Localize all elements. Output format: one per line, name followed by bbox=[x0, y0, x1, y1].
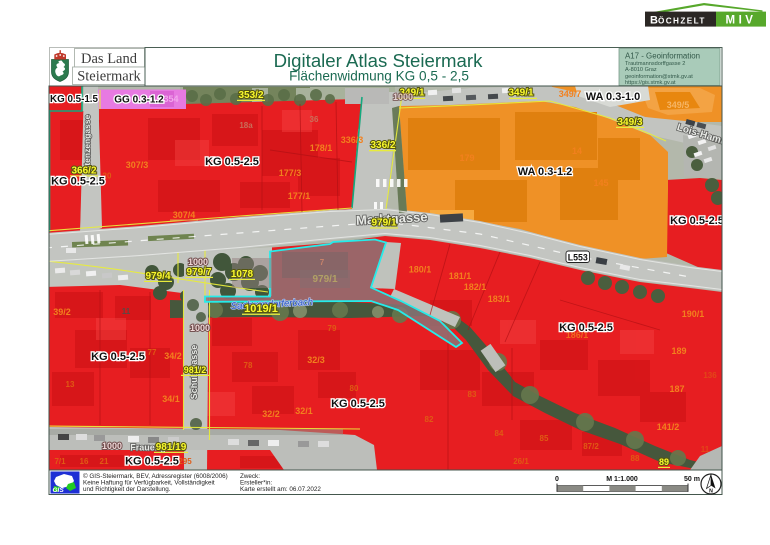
svg-text:34/2: 34/2 bbox=[164, 351, 182, 361]
svg-text:353/2: 353/2 bbox=[238, 90, 263, 101]
svg-text:7/1: 7/1 bbox=[54, 457, 66, 466]
svg-text:145: 145 bbox=[593, 178, 608, 188]
svg-text:136: 136 bbox=[703, 371, 717, 380]
svg-text:80: 80 bbox=[350, 384, 359, 393]
svg-text:16: 16 bbox=[80, 457, 89, 466]
svg-text:181/1: 181/1 bbox=[449, 271, 472, 281]
svg-text:88: 88 bbox=[631, 454, 640, 463]
svg-text:1019/1: 1019/1 bbox=[244, 303, 278, 315]
svg-text:0: 0 bbox=[555, 476, 559, 483]
svg-text:und Richtigkeit der Darstellun: und Richtigkeit der Darstellung. bbox=[83, 486, 171, 493]
svg-text:KG 0.5-2.5: KG 0.5-2.5 bbox=[51, 176, 105, 188]
svg-text:82: 82 bbox=[425, 415, 434, 424]
svg-text:14: 14 bbox=[572, 146, 582, 156]
svg-text:M 1:1.000: M 1:1.000 bbox=[606, 476, 638, 483]
svg-text:1000: 1000 bbox=[190, 323, 210, 333]
svg-text:MIV: MIV bbox=[726, 14, 757, 26]
svg-text:A-8010 Graz: A-8010 Graz bbox=[625, 67, 657, 73]
svg-text:KG 0.5-1.5: KG 0.5-1.5 bbox=[50, 94, 98, 105]
svg-text:WA 0.3-1.2: WA 0.3-1.2 bbox=[518, 166, 573, 178]
svg-text:34/1: 34/1 bbox=[162, 394, 180, 404]
svg-text:Das Land: Das Land bbox=[81, 51, 138, 67]
svg-text:7: 7 bbox=[320, 258, 325, 267]
svg-text:307/4: 307/4 bbox=[173, 210, 196, 220]
svg-text:Stenzengasse: Stenzengasse bbox=[82, 114, 92, 171]
svg-text:21: 21 bbox=[100, 457, 109, 466]
svg-text:13: 13 bbox=[66, 380, 75, 389]
svg-text:979/7: 979/7 bbox=[186, 267, 211, 278]
svg-text:349/1: 349/1 bbox=[508, 88, 533, 99]
svg-text:83: 83 bbox=[468, 390, 477, 399]
svg-text:KG 0.5-2.5: KG 0.5-2.5 bbox=[205, 156, 259, 168]
svg-text:336/3: 336/3 bbox=[341, 135, 364, 145]
svg-text:KG 0.5-2.5: KG 0.5-2.5 bbox=[125, 456, 179, 468]
svg-text:N: N bbox=[709, 489, 713, 495]
svg-text:32/1: 32/1 bbox=[295, 406, 313, 416]
svg-text:https://gis.stmk.gv.at: https://gis.stmk.gv.at bbox=[625, 80, 676, 86]
svg-text:349/7: 349/7 bbox=[559, 89, 582, 99]
svg-text:GG 0.3-1.2: GG 0.3-1.2 bbox=[114, 95, 164, 106]
svg-text:26/1: 26/1 bbox=[513, 457, 529, 466]
svg-text:L553: L553 bbox=[568, 252, 588, 262]
svg-text:39/2: 39/2 bbox=[53, 307, 71, 317]
svg-text:177/1: 177/1 bbox=[288, 191, 311, 201]
svg-text:295: 295 bbox=[178, 457, 192, 466]
svg-text:78: 78 bbox=[244, 361, 253, 370]
svg-text:190/1: 190/1 bbox=[682, 309, 705, 319]
svg-text:349/3: 349/3 bbox=[617, 117, 642, 128]
svg-text:182/1: 182/1 bbox=[464, 282, 487, 292]
svg-text:KG 0.5-2.5: KG 0.5-2.5 bbox=[559, 322, 613, 334]
svg-text:180/1: 180/1 bbox=[409, 265, 432, 275]
svg-text:Flächenwidmung KG 0,5 - 2,5: Flächenwidmung KG 0,5 - 2,5 bbox=[289, 69, 469, 84]
svg-text:WA 0.3-1.0: WA 0.3-1.0 bbox=[586, 91, 641, 103]
svg-text:979/1: 979/1 bbox=[371, 218, 396, 229]
svg-text:979/4: 979/4 bbox=[145, 271, 170, 282]
svg-text:981/2: 981/2 bbox=[184, 365, 207, 375]
svg-text:Steiermark: Steiermark bbox=[77, 69, 141, 85]
svg-text:1000: 1000 bbox=[188, 257, 208, 267]
svg-text:KG 0.5-2.5: KG 0.5-2.5 bbox=[670, 215, 724, 227]
svg-text:981/19: 981/19 bbox=[156, 442, 187, 453]
svg-text:GIS: GIS bbox=[53, 487, 65, 494]
svg-text:18a: 18a bbox=[239, 121, 253, 130]
svg-text:11: 11 bbox=[122, 307, 131, 316]
svg-text:354: 354 bbox=[163, 94, 178, 104]
svg-text:77: 77 bbox=[148, 348, 157, 357]
svg-text:177/3: 177/3 bbox=[279, 168, 302, 178]
svg-text:32/3: 32/3 bbox=[307, 355, 325, 365]
svg-text:1078: 1078 bbox=[231, 269, 254, 280]
svg-text:11: 11 bbox=[701, 445, 710, 454]
svg-text:KG 0.5-2.5: KG 0.5-2.5 bbox=[331, 398, 385, 410]
svg-text:85: 85 bbox=[540, 434, 549, 443]
svg-text:1000: 1000 bbox=[102, 441, 122, 451]
svg-text:349/5: 349/5 bbox=[667, 100, 690, 110]
svg-text:50 m: 50 m bbox=[684, 476, 700, 483]
svg-text:84: 84 bbox=[495, 429, 504, 438]
svg-text:A17 - Geoinformation: A17 - Geoinformation bbox=[625, 52, 700, 61]
svg-text:189: 189 bbox=[671, 346, 686, 356]
svg-text:1000: 1000 bbox=[393, 92, 413, 102]
svg-text:307/3: 307/3 bbox=[126, 160, 149, 170]
svg-text:187: 187 bbox=[669, 384, 684, 394]
svg-text:141/2: 141/2 bbox=[657, 422, 680, 432]
svg-text:979/1: 979/1 bbox=[312, 274, 337, 285]
svg-text:BÖCHZELT: BÖCHZELT bbox=[650, 14, 706, 26]
svg-text:36: 36 bbox=[310, 115, 319, 124]
svg-text:336/2: 336/2 bbox=[370, 140, 395, 151]
svg-text:178/1: 178/1 bbox=[310, 143, 333, 153]
svg-text:179: 179 bbox=[459, 153, 474, 163]
svg-text:32/2: 32/2 bbox=[262, 409, 280, 419]
svg-text:89: 89 bbox=[659, 457, 669, 467]
svg-text:79: 79 bbox=[328, 324, 337, 333]
svg-text:KG 0.5-2.5: KG 0.5-2.5 bbox=[91, 351, 145, 363]
svg-text:Karte erstellt am: 06.07.2022: Karte erstellt am: 06.07.2022 bbox=[240, 486, 321, 493]
svg-text:87/2: 87/2 bbox=[583, 442, 599, 451]
svg-text:183/1: 183/1 bbox=[488, 294, 511, 304]
